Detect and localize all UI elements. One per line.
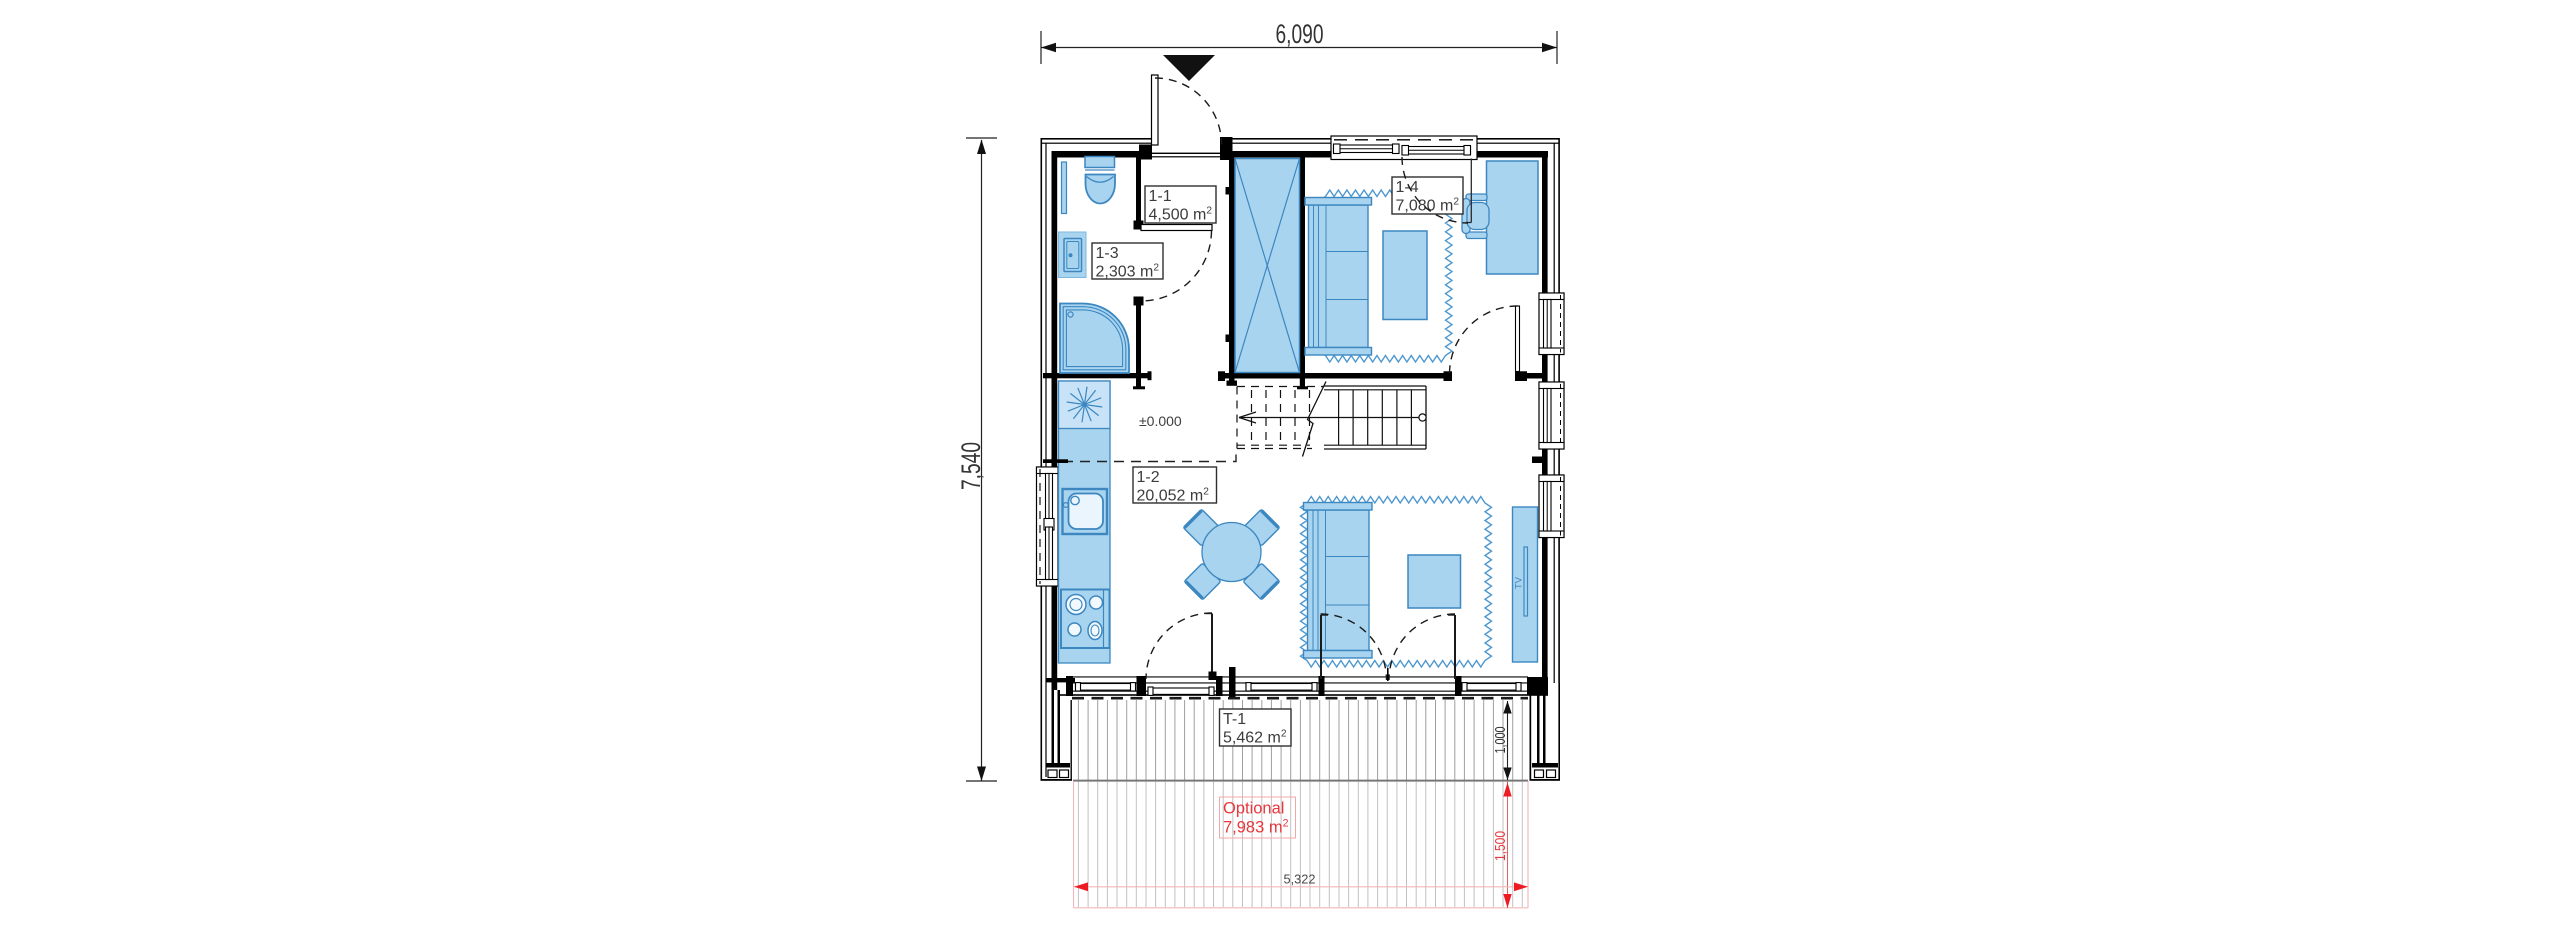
svg-text:5,462 m2: 5,462 m2 [1223,729,1287,747]
svg-text:1-1: 1-1 [1149,188,1172,205]
svg-text:7,080 m2: 7,080 m2 [1396,197,1460,215]
svg-text:7,983 m2: 7,983 m2 [1223,818,1289,837]
svg-text:2,303 m2: 2,303 m2 [1096,263,1160,281]
svg-text:1-3: 1-3 [1096,245,1119,262]
svg-text:6,090: 6,090 [1276,19,1324,49]
svg-text:4,500 m2: 4,500 m2 [1149,206,1213,224]
svg-text:TV: TV [1514,576,1525,589]
svg-text:Optional: Optional [1223,800,1284,818]
svg-text:±0.000: ±0.000 [1139,413,1182,429]
svg-text:7,540: 7,540 [956,442,986,490]
svg-text:1-2: 1-2 [1137,469,1160,486]
svg-text:1,000: 1,000 [1492,727,1509,754]
svg-text:20,052 m2: 20,052 m2 [1137,487,1210,505]
svg-text:1,500: 1,500 [1492,831,1509,861]
svg-text:T-1: T-1 [1223,711,1246,728]
svg-text:5,322: 5,322 [1284,872,1316,887]
svg-text:1-4: 1-4 [1396,179,1419,196]
